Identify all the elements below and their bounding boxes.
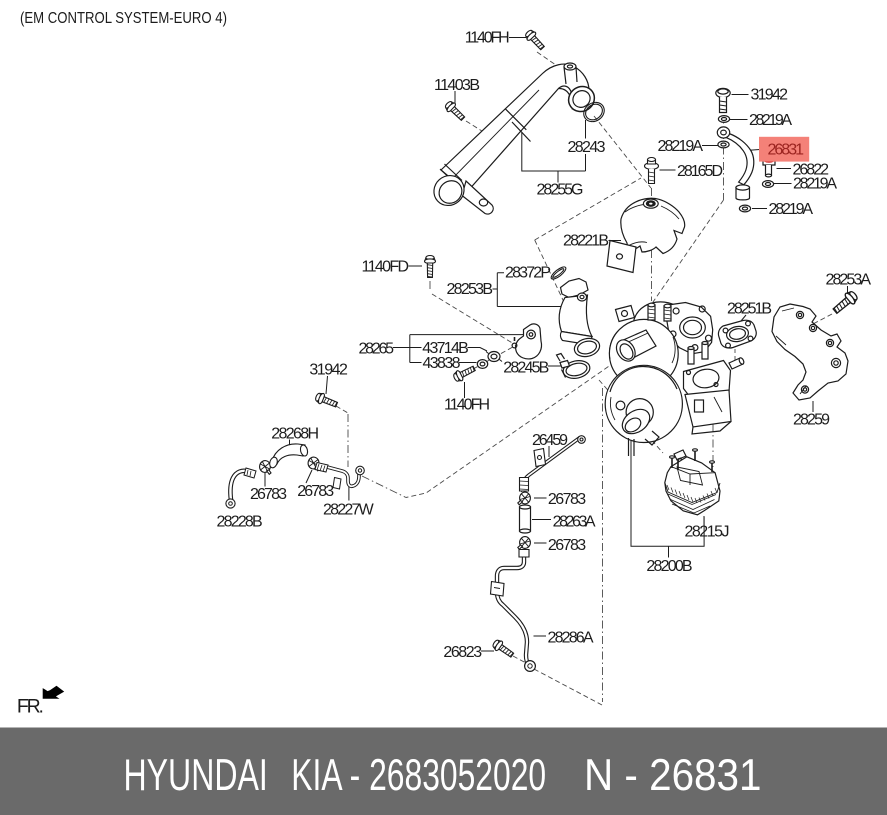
svg-text:26783: 26783 (548, 491, 586, 508)
svg-text:28221B: 28221B (563, 233, 609, 250)
svg-text:28268H: 28268H (271, 425, 319, 442)
svg-text:28372P: 28372P (505, 265, 551, 282)
svg-text:26831: 26831 (768, 142, 805, 159)
svg-text:1140FD: 1140FD (362, 259, 410, 276)
svg-text:28259: 28259 (793, 412, 830, 429)
svg-text:FR.: FR. (17, 696, 44, 718)
svg-text:28265: 28265 (359, 341, 395, 358)
svg-text:28263A: 28263A (553, 513, 596, 530)
svg-text:28253A: 28253A (826, 272, 872, 289)
svg-text:28215J: 28215J (685, 524, 730, 541)
svg-text:28253B: 28253B (447, 281, 494, 298)
svg-text:31942: 31942 (751, 87, 789, 104)
svg-text:11403B: 11403B (434, 77, 480, 94)
svg-text:28245B: 28245B (503, 359, 549, 376)
svg-text:28227W: 28227W (323, 501, 375, 518)
svg-text:28255G: 28255G (537, 182, 584, 199)
svg-text:28165D: 28165D (677, 163, 723, 180)
svg-text:26783: 26783 (250, 486, 287, 503)
svg-text:(EM CONTROL SYSTEM-EURO 4): (EM CONTROL SYSTEM-EURO 4) (20, 10, 227, 27)
svg-text:28219A: 28219A (749, 112, 792, 129)
svg-text:N - 26831: N - 26831 (584, 751, 762, 800)
svg-text:26823: 26823 (443, 644, 482, 661)
svg-text:1140FH: 1140FH (444, 397, 490, 414)
svg-text:43838: 43838 (423, 355, 461, 372)
svg-text:28286A: 28286A (548, 630, 594, 647)
svg-text:28251B: 28251B (727, 301, 772, 318)
svg-text:HYUNDAI: HYUNDAI (124, 751, 268, 800)
svg-text:28228B: 28228B (217, 514, 263, 531)
svg-text:26783: 26783 (548, 537, 586, 554)
svg-text:28243: 28243 (568, 139, 606, 156)
svg-text:28200B: 28200B (646, 558, 692, 575)
svg-text:26459: 26459 (532, 432, 568, 449)
svg-text:KIA - 2683052020: KIA - 2683052020 (291, 751, 546, 800)
svg-text:26783: 26783 (297, 483, 334, 500)
svg-text:31942: 31942 (309, 361, 348, 378)
svg-text:28219A: 28219A (769, 201, 814, 218)
svg-text:28219A: 28219A (793, 176, 837, 193)
svg-text:1140FH: 1140FH (465, 30, 510, 47)
svg-text:28219A: 28219A (658, 138, 704, 155)
